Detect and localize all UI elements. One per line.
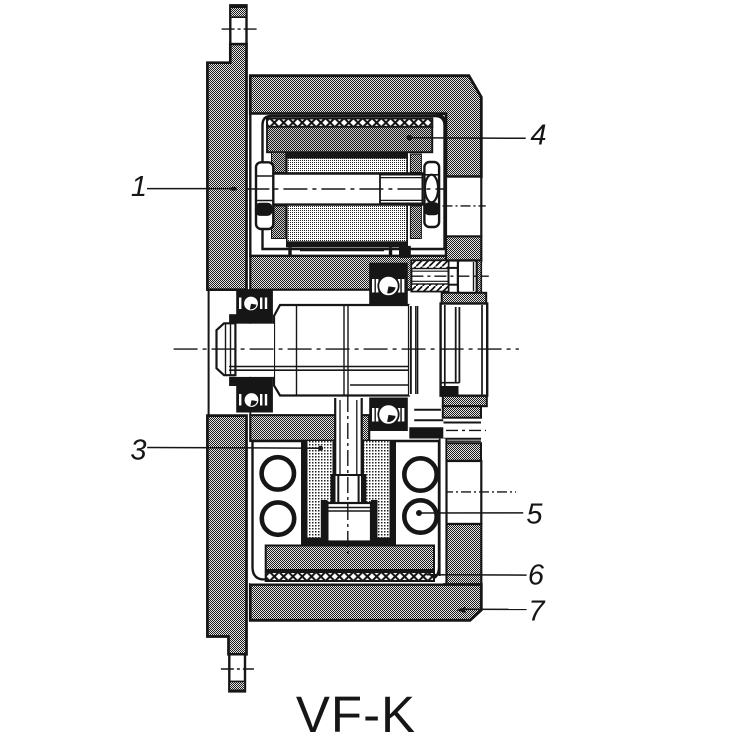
svg-text:7: 7 xyxy=(528,596,546,628)
svg-text:1: 1 xyxy=(131,171,147,203)
svg-text:3: 3 xyxy=(130,435,146,467)
svg-text:5: 5 xyxy=(526,499,543,531)
svg-text:6: 6 xyxy=(528,560,545,592)
svg-text:4: 4 xyxy=(530,120,546,152)
svg-text:VF-K: VF-K xyxy=(296,686,416,737)
